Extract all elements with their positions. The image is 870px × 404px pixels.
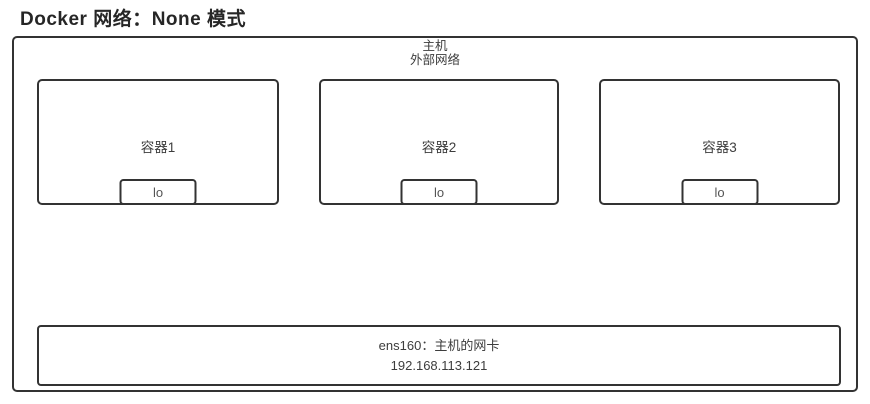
host-box: 主机 外部网络 容器1 lo 容器2 lo 容器3 lo ens160：主机的网… [12,36,858,392]
container-3-loopback-box: lo [681,179,758,205]
container-box-3: 容器3 lo [599,79,840,205]
container-2-label: 容器2 [422,136,457,156]
docker-none-mode-diagram: Docker 网络：None 模式 主机 外部网络 容器1 lo 容器2 lo … [0,0,870,404]
container-box-1: 容器1 lo [37,79,279,205]
container-3-loopback-label: lo [714,185,724,200]
page-title: Docker 网络：None 模式 [20,4,246,31]
container-2-loopback-box: lo [401,179,478,205]
container-1-loopback-label: lo [153,185,163,200]
container-1-label: 容器1 [141,136,176,156]
host-label: 主机 外部网络 [14,39,856,67]
container-2-loopback-label: lo [434,185,444,200]
host-label-line2: 外部网络 [14,53,856,67]
container-1-loopback-box: lo [120,179,197,205]
host-nic-box: ens160：主机的网卡 192.168.113.121 [37,325,841,386]
nic-name: ens160：主机的网卡 [379,336,500,356]
nic-ip: 192.168.113.121 [391,356,488,376]
container-3-label: 容器3 [702,136,737,156]
container-box-2: 容器2 lo [319,79,559,205]
host-label-line1: 主机 [14,39,856,53]
